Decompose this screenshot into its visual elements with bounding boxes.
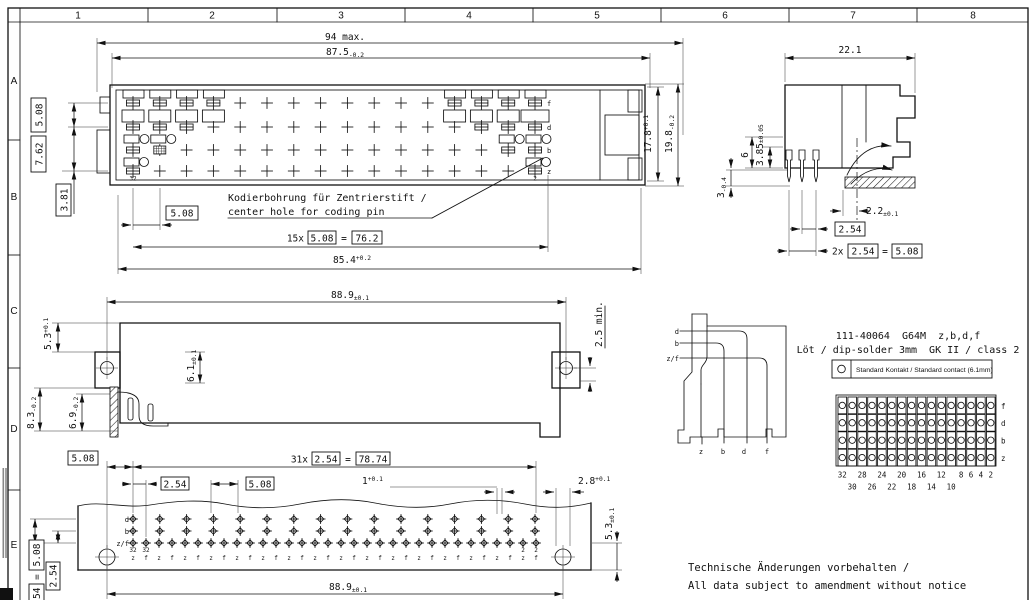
zf-label: z [365, 555, 369, 562]
dim-row-pitch-box: 5.08 [35, 103, 46, 126]
border-column-labels: 12345678 [75, 11, 976, 22]
contact-circle [849, 454, 855, 460]
dim-height-inner: 17.8+0.1 [643, 115, 654, 153]
grid-column-number: 32 [838, 471, 847, 480]
dim-depth: 22.1 [839, 45, 862, 56]
drawing-rect [605, 115, 639, 155]
contact-circle [839, 454, 845, 460]
contact-circle [948, 454, 954, 460]
contact-circle [948, 402, 954, 408]
zf-label: z [443, 555, 447, 562]
contact-circle [978, 437, 984, 443]
side-pitch-equals: = [882, 247, 888, 258]
contact-circle [938, 402, 944, 408]
drawing-rect [97, 130, 110, 173]
tolerance-text: -0.2 [669, 115, 676, 130]
coding-hole [515, 135, 524, 144]
drawing-line [432, 158, 543, 218]
contact-circle [978, 402, 984, 408]
tolerance-text: 85.4 [333, 255, 356, 266]
contact-circle [958, 420, 964, 426]
coding-hole [542, 158, 551, 167]
left-small-pitch-rotated: 2.54 [46, 562, 60, 590]
dim-body-width: 87.5-0.2 [326, 47, 364, 59]
tolerance-text: ±0.1 [609, 507, 616, 522]
pitch-count: 15x [287, 234, 304, 245]
contact-circle [859, 402, 865, 408]
coding-hole [140, 158, 149, 167]
zf-label: f [326, 555, 330, 562]
drawing-path [692, 314, 707, 384]
tolerance-text: +0.1 [368, 476, 383, 483]
hatched-wall [110, 387, 118, 437]
coding-cavity [202, 110, 224, 122]
tolerance-text: 17.8 [643, 130, 654, 153]
contact-circle [938, 420, 944, 426]
drawing-path [680, 331, 747, 443]
tolerance-text: 2.8 [578, 476, 595, 487]
border-row-label: C [10, 306, 17, 317]
row-label: b [547, 147, 551, 155]
side-pitch-total-box: 5.08 [896, 247, 919, 258]
contact-circle [879, 437, 885, 443]
tolerance-text: 8.3 [26, 412, 37, 429]
side-pitch-count: 2x [832, 247, 844, 258]
coding-slot [124, 135, 139, 143]
edge-pitch-box: 5.08 [72, 454, 95, 465]
footer-note-en: All data subject to amendment without no… [688, 580, 966, 592]
contact-circle [968, 437, 974, 443]
contact-circle [849, 402, 855, 408]
grid-column-number: 6 [969, 471, 974, 480]
zf-label: f [482, 555, 486, 562]
side-pitch-box: 2.54 [852, 247, 875, 258]
polarizing-tab [203, 90, 224, 98]
zf-label: f [508, 555, 512, 562]
contact-circle [859, 454, 865, 460]
drawing-rect [628, 90, 642, 112]
schematic-bottom-label: b [721, 448, 725, 456]
tolerance-text: ±0.1 [883, 211, 898, 218]
contact-grid: fdbz3228242016128642302622181410 [838, 397, 1006, 492]
tolerance-text: +0.2 [356, 255, 371, 262]
top-view: 322fdbz 94 max. 87.5-0.2 17.8+0.1 19.8-0… [31, 32, 684, 274]
dim-flange-top: 5.3+0.1 [43, 317, 54, 350]
contact-circle [839, 437, 845, 443]
tolerance-text: 5.3 [604, 523, 615, 540]
tolerance-text: 19.8 [664, 130, 675, 153]
contact-circle [889, 454, 895, 460]
border-column-label: 2 [209, 11, 215, 22]
grid-column-number: 30 [848, 483, 858, 492]
contact-circle [978, 420, 984, 426]
contact-circle [968, 402, 974, 408]
contact-circle [879, 454, 885, 460]
contact-circle [938, 437, 944, 443]
pin-number: 32 [129, 547, 137, 554]
dim-row-edge: 5.3±0.1 [604, 507, 616, 540]
bv-pitch-count: 31x [291, 455, 308, 466]
polarizing-tab [150, 90, 171, 98]
polarizing-tab [123, 90, 144, 98]
dim-col-pitch-box: 5.08 [171, 209, 194, 220]
dim-clearance: 2.5 min. [594, 301, 605, 347]
schematic-left-label: z/f [666, 355, 679, 363]
schematic-left-label: d [675, 328, 679, 336]
contact-circle [988, 420, 994, 426]
tolerance-text: 88.9 [331, 290, 354, 301]
drawing-rect [116, 90, 639, 180]
row-label: d [125, 516, 129, 524]
tolerance-text: -0.4 [721, 177, 728, 192]
tolerance-text: +0.1 [643, 115, 650, 130]
zf-label: f [404, 555, 408, 562]
grid-column-number: 28 [858, 471, 868, 480]
bottom-view-pin-field [129, 515, 541, 548]
zf-label: f [430, 555, 434, 562]
tolerance-text: 3.85 [755, 143, 766, 166]
grid-column-number: 16 [917, 471, 927, 480]
dim-depth-upper: 6.9-0.2 [68, 396, 80, 429]
grid-row-label: b [1001, 437, 1006, 446]
dim-standoff: 3.85±0.05 [755, 124, 766, 166]
contact-circle [988, 402, 994, 408]
border-column-label: 5 [594, 11, 600, 22]
schematic-left-label: b [675, 340, 679, 348]
contact-circle [899, 454, 905, 460]
border-row-label: D [10, 424, 17, 435]
coding-slot [124, 158, 139, 166]
part-spec-line: Löt / dip-solder 3mm GK II / class 2 [797, 345, 1020, 356]
pin-number-first: 32 [129, 176, 137, 183]
dim-pin-span: 85.4+0.2 [333, 255, 371, 266]
contact-circle [928, 454, 934, 460]
border-column-label: 4 [466, 11, 472, 22]
pin-number: 32 [142, 547, 150, 554]
schematic-bottom-label: z [699, 448, 703, 456]
dim-tail: 2.2±0.1 [866, 206, 899, 218]
contact-circle [988, 454, 994, 460]
zf-label: f [300, 555, 304, 562]
dim-row-span-box: 7.62 [35, 143, 46, 166]
tolerance-text: 2.2 [866, 206, 883, 217]
zf-label: z [313, 555, 317, 562]
contact-circle [988, 437, 994, 443]
grid-column-number: 10 [947, 483, 957, 492]
bv-pitch-small-box: 2.54 [164, 480, 187, 491]
schematic-bottom-label: f [765, 448, 769, 456]
dim-hole-span-bottom: 88.9±0.1 [329, 582, 367, 594]
grid-column-number: 24 [877, 471, 887, 480]
contact-circle [968, 420, 974, 426]
zf-label: z [469, 555, 473, 562]
left-small-pitch-box: 2.54 [49, 564, 60, 587]
grid-column-number: 4 [979, 471, 984, 480]
contact-circle [879, 402, 885, 408]
engineering-drawing-sheet: 12345678 ABCDE 322fdbz 94 max. 87.5-0.2 … [0, 0, 1030, 600]
zf-label: z [235, 555, 239, 562]
border-column-label: 3 [338, 11, 344, 22]
border-row-label: B [11, 192, 18, 203]
contact-circle [849, 437, 855, 443]
tolerance-text: ±0.1 [354, 295, 369, 302]
contact-circle [879, 420, 885, 426]
zf-label: f [378, 555, 382, 562]
drawing-rect [95, 352, 120, 388]
polarizing-tab [525, 90, 546, 98]
bottom-view-pin-labels: zfzfzfzfzfzfzfzfzfzfzfzfzfzfzfzf323222db… [116, 516, 538, 562]
contact-circle [908, 420, 914, 426]
contact-circle [938, 454, 944, 460]
contact-circle [978, 454, 984, 460]
pitch-value-box: 5.08 [311, 234, 334, 245]
schematic-bottom-label: d [742, 448, 746, 456]
tolerance-text: +0.1 [595, 476, 610, 483]
grid-column-number: 18 [907, 483, 917, 492]
grid-row-label: z [1001, 454, 1006, 463]
contact-circle [958, 402, 964, 408]
contact-circle [958, 454, 964, 460]
zf-label: f [196, 555, 200, 562]
contact-circle [899, 402, 905, 408]
dim-pin-width: 1+0.1 [362, 476, 383, 487]
contact-circle [918, 402, 924, 408]
zf-label: z [183, 555, 187, 562]
border-row-labels: ABCDE [10, 76, 17, 551]
margin-micro-text [3, 468, 5, 558]
tolerance-text: 5.3 [43, 333, 54, 350]
zf-label: z [131, 555, 135, 562]
contact-circle [889, 437, 895, 443]
contact-circle [928, 420, 934, 426]
contact-circle [968, 454, 974, 460]
coding-slot [499, 135, 514, 143]
grid-column-number: 20 [897, 471, 907, 480]
bv-pitch-total-box: 78.74 [359, 455, 388, 466]
grid-row-label: f [1001, 402, 1006, 411]
contact-tail [148, 404, 153, 421]
front-view: 88.9±0.1 5.3+0.1 6.1±0.1 8.3-0.2 6.9-0.2… [26, 290, 605, 437]
grid-column-number: 26 [867, 483, 877, 492]
contact-circle [928, 437, 934, 443]
zf-label: f [352, 555, 356, 562]
break-line [78, 500, 591, 508]
contact-circle [958, 437, 964, 443]
left-pitch-total-box: 5.08 [32, 543, 43, 566]
zf-label: z [521, 555, 525, 562]
solder-pin [799, 150, 805, 182]
dim-overall-width: 94 max. [325, 32, 365, 43]
contact-circle [839, 402, 845, 408]
zf-label: z [157, 555, 161, 562]
zf-label: f [456, 555, 460, 562]
zf-label: z [339, 555, 343, 562]
pin-number-last: 2 [533, 176, 537, 183]
contact-circle [928, 402, 934, 408]
dim-depth-lower: 8.3-0.2 [26, 396, 38, 429]
row-label: z/f [116, 540, 129, 548]
grid-column-number: 12 [937, 471, 946, 480]
pin-number: 2 [534, 547, 538, 554]
zf-label: z [287, 555, 291, 562]
corner-block [0, 588, 13, 600]
tolerance-text: -0.2 [349, 52, 364, 59]
tolerance-text: -0.2 [73, 396, 80, 411]
contact-circle [839, 420, 845, 426]
coding-hole [167, 135, 176, 144]
contact-circle [918, 437, 924, 443]
contact-circle [889, 402, 895, 408]
polarizing-tab [445, 90, 466, 98]
grid-column-number: 2 [989, 471, 994, 480]
tolerance-text: ±0.1 [352, 587, 367, 594]
part-info-block: 111-40064 G64M z,b,d,f Löt / dip-solder … [797, 331, 1020, 492]
contact-circle [908, 437, 914, 443]
drawing-path [678, 314, 701, 443]
zf-label: z [495, 555, 499, 562]
tolerance-text: ±0.1 [191, 349, 198, 364]
bv-pitch-large-box: 5.08 [249, 480, 272, 491]
coding-hole [542, 135, 551, 144]
dim-height-outer: 19.8-0.2 [664, 115, 676, 153]
coding-note-de: Kodierbohrung für Zentrierstift / [228, 193, 427, 204]
drawing-path [847, 146, 891, 175]
tolerance-text: 87.5 [326, 47, 349, 58]
drawing-rect [628, 158, 642, 180]
border-column-label: 7 [850, 11, 856, 22]
solder-pin [786, 150, 792, 182]
tolerance-text: ±0.05 [758, 124, 765, 143]
zf-label: z [417, 555, 421, 562]
dim-pin-length: 3-0.4 [716, 177, 728, 198]
dim-pitch-box: 2.54 [839, 225, 862, 236]
border-row-label: A [11, 76, 18, 87]
row-label: d [547, 124, 551, 132]
dim-six: 6 [740, 152, 751, 158]
contact-circle [869, 402, 875, 408]
contact-circle [869, 437, 875, 443]
top-view-pin-field [122, 90, 551, 178]
coding-hole [140, 135, 149, 144]
solder-pin [813, 150, 819, 182]
contact-circle [899, 437, 905, 443]
contact-circle [869, 454, 875, 460]
polarizing-tab [177, 90, 198, 98]
border-column-label: 6 [722, 11, 728, 22]
dim-hole-span: 88.9±0.1 [331, 290, 369, 302]
contact-circle [948, 420, 954, 426]
margin-micro-text [5, 468, 7, 558]
contact-circle [859, 437, 865, 443]
bv-pitch-equals: = [345, 455, 351, 466]
drawing-path [680, 358, 767, 443]
border-row-label: E [11, 540, 18, 551]
left-pitch-box: 2.54 [32, 587, 43, 600]
left-pitch-eq-rotated: 2.54 = 5.08 [29, 540, 44, 600]
contact-circle [889, 420, 895, 426]
tolerance-text: 6.1 [186, 365, 197, 382]
zf-label: z [261, 555, 265, 562]
pitch-total-box: 76.2 [356, 234, 379, 245]
top-view-row-labels: 322fdbz [129, 100, 551, 183]
row-label: z [547, 168, 551, 176]
pin-number: 2 [521, 547, 525, 554]
legend-label: Standard Kontakt / Standard contact (6.1… [856, 367, 993, 374]
coding-slot [526, 135, 541, 143]
pitch-equals: = [341, 234, 347, 245]
contact-circle [899, 420, 905, 426]
bv-pitch-box: 2.54 [315, 455, 338, 466]
grid-column-number: 22 [887, 483, 896, 492]
dim-hole-edge: 2.8+0.1 [578, 476, 611, 487]
coding-slot [526, 158, 541, 166]
zf-label: f [144, 555, 148, 562]
coding-pin-hatched [154, 146, 166, 154]
contact-circle [849, 420, 855, 426]
grid-column-number: 14 [927, 483, 937, 492]
hatched-base [845, 177, 915, 188]
zf-label: f [274, 555, 278, 562]
contact-circle [948, 437, 954, 443]
zf-label: z [209, 555, 213, 562]
contact-circle [859, 420, 865, 426]
contact-circle [869, 420, 875, 426]
border-column-label: 1 [75, 11, 81, 22]
polarizing-tab [498, 90, 519, 98]
drawing-rect [100, 97, 110, 113]
grid-row-label: d [1001, 419, 1006, 428]
row-routing-schematic: dbz/fzbdf [666, 314, 786, 456]
tolerance-text: 88.9 [329, 582, 352, 593]
tolerance-text: -0.2 [31, 396, 38, 411]
zf-label: f [170, 555, 174, 562]
tolerance-text: 6.9 [68, 412, 79, 429]
contact-circle [908, 402, 914, 408]
footer-note-de: Technische Änderungen vorbehalten / [688, 561, 909, 574]
drawing-rect [8, 8, 1028, 600]
part-number-line: 111-40064 G64M z,b,d,f [836, 331, 981, 342]
border-column-label: 8 [970, 11, 976, 22]
sheet-border: 12345678 ABCDE [0, 8, 1028, 600]
polarizing-tab [471, 90, 492, 98]
contact-circle [908, 454, 914, 460]
drawing-path [118, 392, 168, 426]
zf-label: f [534, 555, 538, 562]
zf-label: f [248, 555, 252, 562]
tolerance-text: +0.1 [43, 317, 50, 332]
grid-column-number: 8 [959, 471, 964, 480]
coding-cavity [444, 110, 466, 122]
dim-row-offset-box: 3.81 [60, 188, 71, 211]
row-label: f [547, 100, 551, 108]
contact-circle [918, 454, 924, 460]
zf-label: f [222, 555, 226, 562]
zf-label: z [391, 555, 395, 562]
bottom-view: zfzfzfzfzfzfzfzfzfzfzfzfzfzfzfzf323222db… [29, 451, 622, 600]
dim-body-height: 6.1±0.1 [186, 349, 198, 382]
coding-note-en: center hole for coding pin [228, 207, 385, 218]
row-label: b [125, 528, 129, 536]
contact-circle [918, 420, 924, 426]
side-view: 22.1 3.85±0.05 6 3-0.4 2.2±0.1 2.54 2x 2… [716, 45, 922, 258]
left-pitch-equals: = [32, 574, 43, 580]
coding-slot [151, 135, 166, 143]
contact-tail [128, 398, 133, 420]
